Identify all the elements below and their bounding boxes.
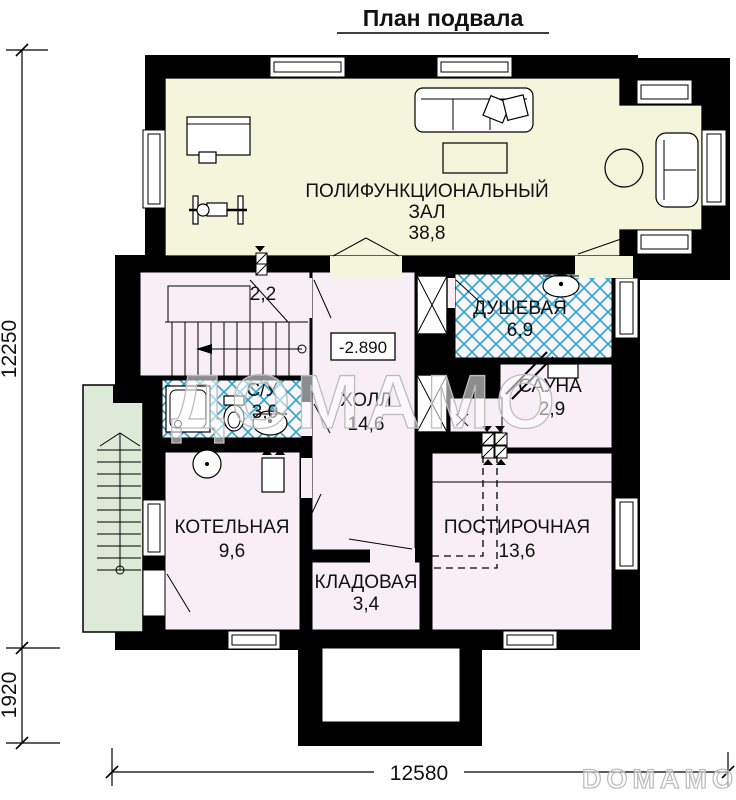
window-right-shower [615,278,638,338]
window-bottom-boiler [228,631,280,649]
round-table [605,149,643,187]
exterior-stairs-wall-notch [113,385,143,403]
elevation-mark: -2.890 [331,333,395,360]
window-bay-right [702,130,726,206]
door-shower [447,278,455,308]
floor-plan-drawing: План подвала [0,0,736,800]
sofa [415,88,533,132]
label-storage: КЛАДОВАЯ [315,572,418,593]
shaft-box-1 [417,276,447,334]
page-title: План подвала [363,5,524,31]
pillow [503,95,528,120]
door-stairwell [301,278,312,318]
washbasin-shower-room [543,275,579,297]
label-laundry: ПОСТИРОЧНАЯ [444,517,590,538]
window-bottom-laundry [503,631,557,649]
door-storage [370,548,415,564]
dim-width-total: 12580 [390,762,448,785]
dim-porch: 1920 [0,672,21,719]
door-boiler [301,458,312,498]
window-bay-bottom [637,230,692,254]
label-multifunction-hall: ПОЛИФУНКЦИОНАЛЬНЫЙ [305,180,548,202]
svg-text:3,4: 3,4 [353,594,380,615]
label-shower: ДУШЕВАЯ [473,298,567,319]
window-top-2 [437,57,512,77]
door-boiler-exterior [143,570,165,616]
svg-text:6,9: 6,9 [507,320,533,341]
exterior-stairs-area [83,385,143,632]
exterior-stairs [83,385,143,632]
svg-text:9,6: 9,6 [219,541,245,562]
window-left-hall [143,130,165,208]
coffee-table [443,143,507,173]
svg-text:ЗАЛ: ЗАЛ [408,202,445,223]
watermark-corner: DOMAMO [582,764,736,794]
watermark-center: ДОМАМО [171,360,561,445]
door-hall-main [330,256,402,278]
dim-height-total: 12250 [0,320,21,378]
dimension-left: 12250 [0,44,60,654]
entrance-pit-inner [322,648,460,722]
basement-floor-plan: План подвала [0,0,736,800]
window-boiler-left [143,500,165,556]
window-bay-top [637,80,692,104]
svg-text:38,8: 38,8 [409,223,446,244]
svg-text:13,6: 13,6 [499,541,536,562]
label-stairwell-area: 2,2 [250,284,276,305]
label-boiler: КОТЕЛЬНАЯ [175,517,290,538]
door-hall-right [575,256,633,278]
elevation-value: -2.890 [339,338,387,357]
dimension-left-porch: 1920 [0,648,60,749]
loveseat [656,133,698,207]
window-right-laundry [615,498,638,570]
window-top-1 [270,57,345,77]
